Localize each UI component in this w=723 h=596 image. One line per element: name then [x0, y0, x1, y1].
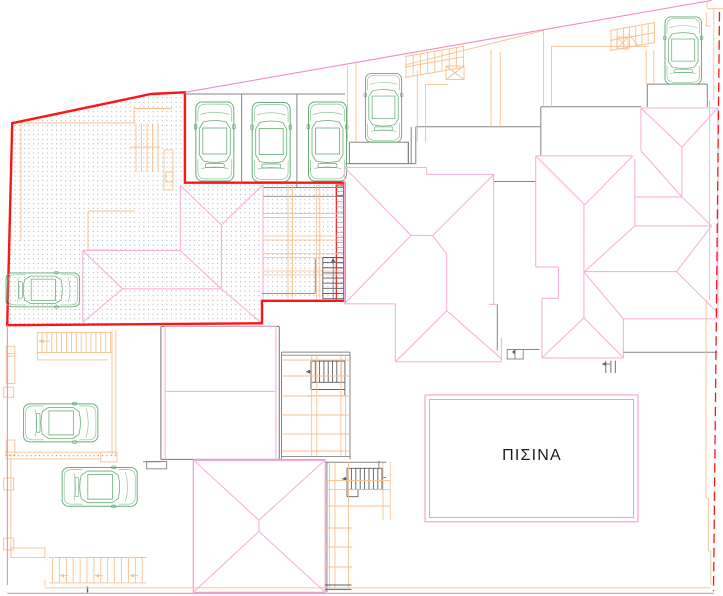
svg-text:ΠΙΣΙΝΑ: ΠΙΣΙΝΑ: [502, 447, 562, 464]
